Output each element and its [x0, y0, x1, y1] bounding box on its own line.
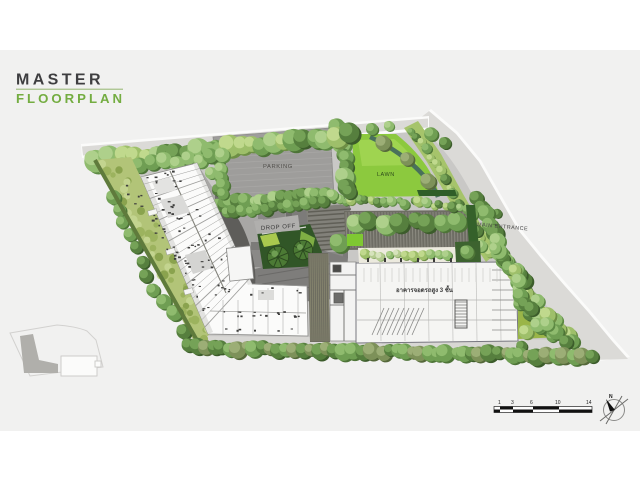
svg-text:N: N [609, 394, 613, 400]
svg-text:14: 14 [586, 400, 592, 406]
svg-text:6: 6 [530, 400, 533, 406]
svg-text:3: 3 [511, 400, 514, 406]
svg-text:LAWN: LAWN [377, 172, 395, 178]
svg-text:FLOORPLAN: FLOORPLAN [16, 91, 125, 106]
svg-text:PARKING: PARKING [263, 164, 293, 170]
svg-text:MASTER: MASTER [16, 72, 104, 89]
svg-text:1: 1 [498, 400, 501, 406]
svg-text:10: 10 [555, 400, 561, 406]
